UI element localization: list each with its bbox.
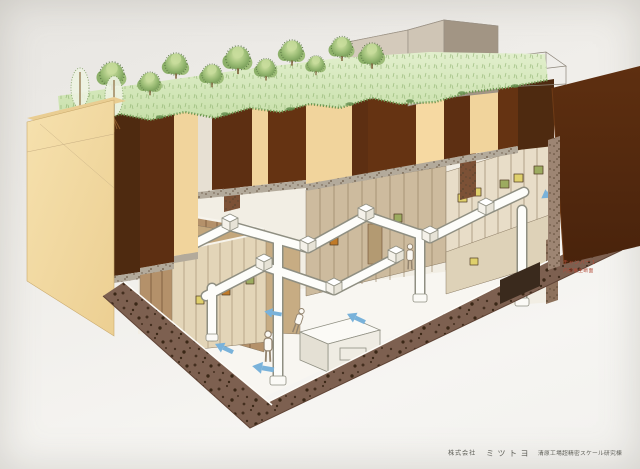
tree-bush	[162, 53, 189, 79]
caption-facility-name: 清原工場超精密スケール研究棟	[538, 449, 622, 457]
caption-company-prefix: 株式会社	[448, 449, 476, 457]
annotation-line1: チャンバー１	[563, 259, 596, 266]
scanned-photo: チャンバー１ 内部養生断面 株式会社 ミツトヨ 清原工場超精密スケール研究棟	[0, 0, 640, 469]
cutaway-illustration: チャンバー１ 内部養生断面 株式会社 ミツトヨ 清原工場超精密スケール研究棟	[0, 0, 640, 469]
tree-bush	[278, 40, 305, 66]
earth-right-mass	[548, 66, 640, 270]
caption-company-name: ミツトヨ	[486, 449, 532, 458]
door-panel	[368, 224, 382, 264]
annotation-line2: 内部養生断面	[563, 267, 594, 274]
caption-text: 株式会社 ミツトヨ 清原工場超精密スケール研究棟	[448, 449, 622, 458]
